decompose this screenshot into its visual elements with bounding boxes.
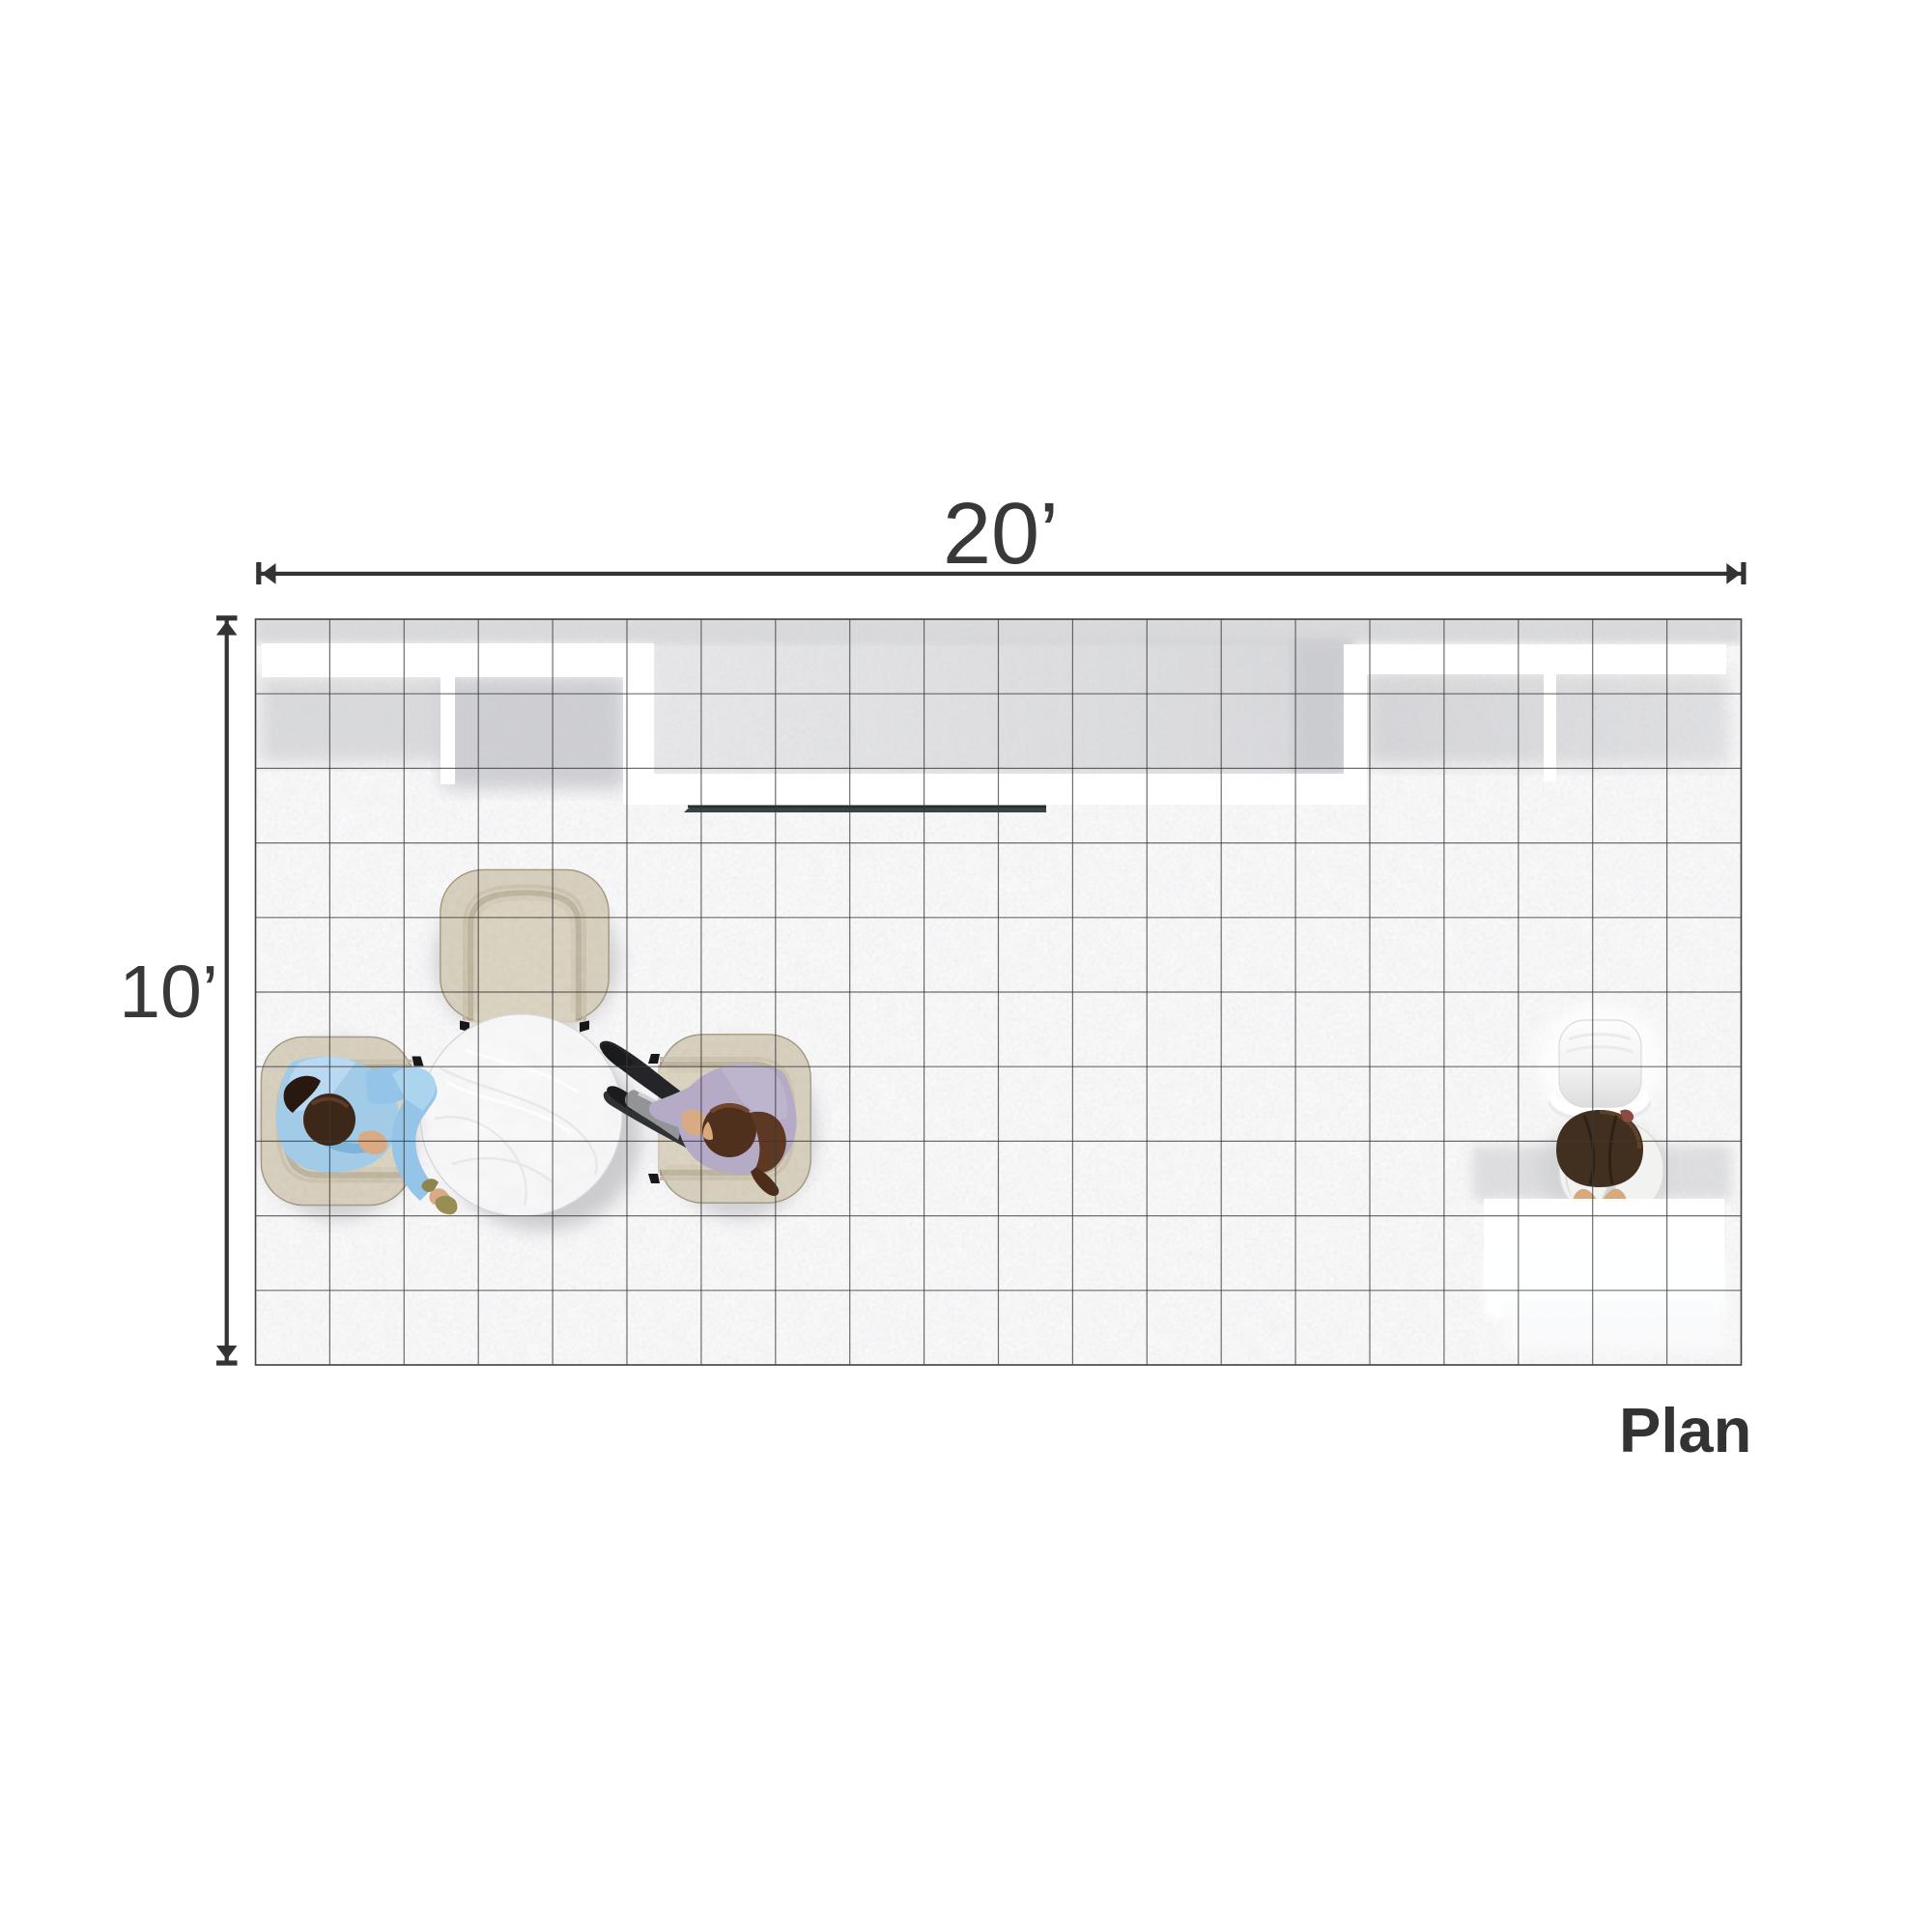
svg-text:Plan: Plan — [1619, 1395, 1751, 1465]
svg-text:20’: 20’ — [943, 486, 1059, 582]
svg-text:10’: 10’ — [119, 951, 218, 1034]
